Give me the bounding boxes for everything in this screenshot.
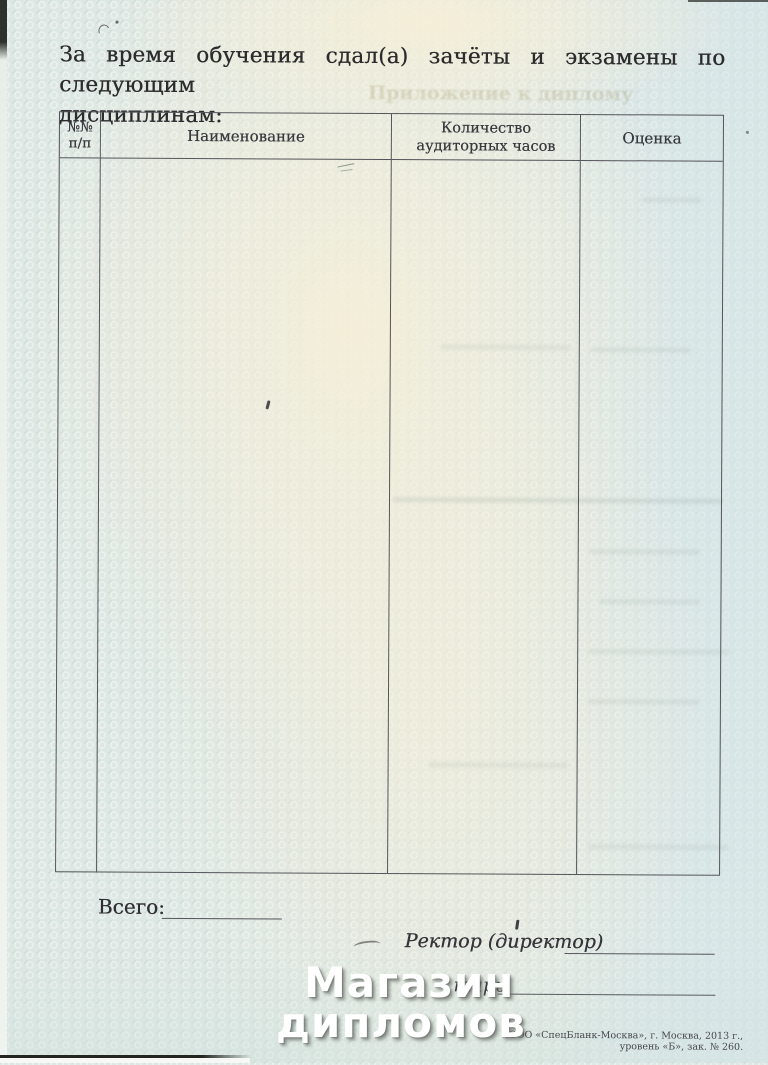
document-content: Приложение к диплому За время обучения с… [0,0,768,1065]
total-fill-in-line [162,918,282,920]
column-header-name-line1: Наименование [187,126,305,145]
secretary-signature-line [497,994,715,996]
column-header-grade: Оценка [581,115,723,162]
table-body-cell-number [56,158,101,871]
ink-speck [115,21,118,24]
column-header-hours-line2: аудиторных часов [416,137,555,156]
column-header-number-line2: п/п [69,135,92,151]
pen-mark [353,939,381,951]
ink-speck [97,23,111,38]
column-header-name: Наименование [101,113,392,161]
column-header-hours: Количество аудиторных часов [392,114,581,161]
scanned-diploma-supplement-page: { "document": { "title_line1": "За время… [0,0,768,1063]
rector-signature-line [565,953,715,955]
column-header-grade-line1: Оценка [622,129,681,147]
page-title-line1: За время обучения сдал(а) зачёты и экзам… [59,40,725,103]
disciplines-table: №№ п/п Наименование Количество аудиторны… [55,111,724,875]
ink-speck [515,920,519,930]
table-body-cell-hours [388,160,581,874]
column-header-hours-line1: Количество [441,119,531,137]
table-body-cell-name [97,159,392,874]
column-header-number-line1: №№ [67,119,93,135]
total-label: Всего: [98,895,165,919]
table-body-cell-grade [577,161,723,875]
ink-speck [746,131,749,134]
printer-imprint: ООО «СпецБланк-Москва», г. Москва, 2013 … [485,1030,743,1053]
rector-label: Ректор (директор) [405,930,604,953]
column-header-number: №№ п/п [60,112,101,158]
